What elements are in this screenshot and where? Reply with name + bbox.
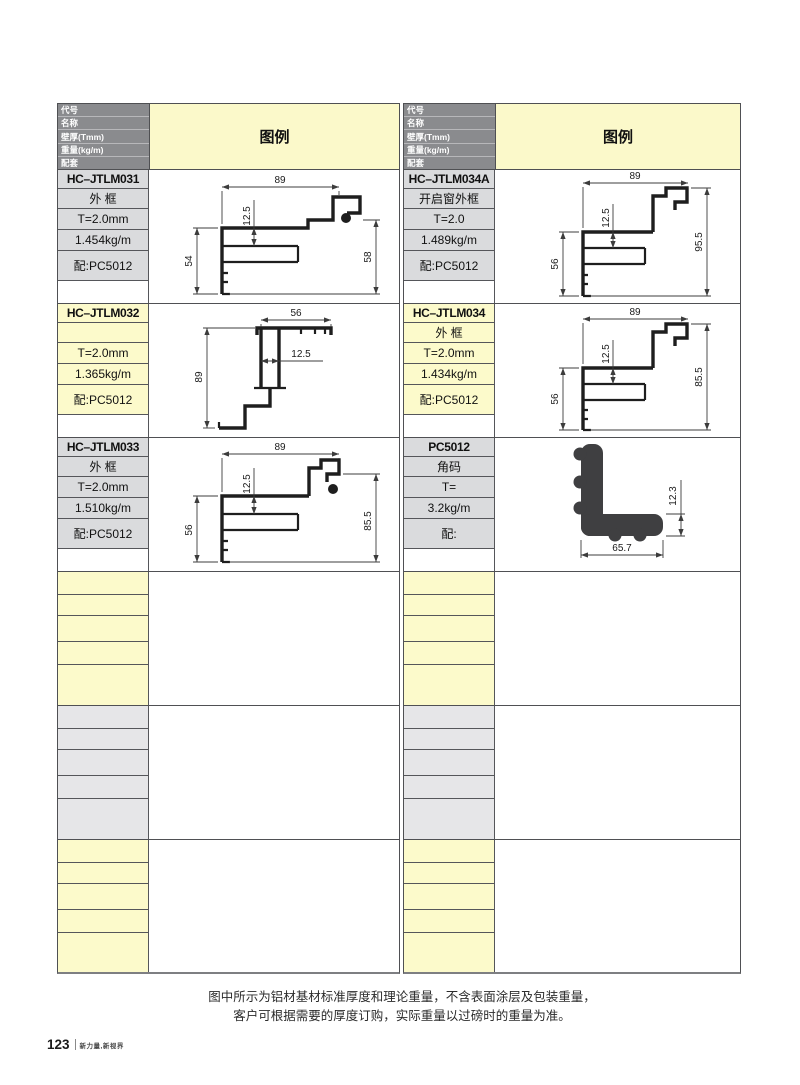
dim-label: 95.5 [694, 232, 705, 252]
table-left-half: 代号 名称 壁厚(Tmm) 重量(kg/m) 配套 图例 HC–JTLM031 … [57, 103, 400, 974]
profile-drawing-jtlm034a: 89 12.5 56 95.5 [495, 170, 740, 303]
profile-match: 配:PC5012 [404, 385, 494, 415]
profile-code: PC5012 [404, 438, 494, 457]
profile-code: HC–JTLM034A [404, 170, 494, 189]
page-footer: 123 新力量,新视界 [47, 1037, 124, 1052]
profile-table: 代号 名称 壁厚(Tmm) 重量(kg/m) 配套 图例 HC–JTLM031 … [57, 103, 741, 974]
dim-label: 56 [184, 524, 195, 536]
dim-label: 58 [363, 251, 374, 263]
dim-label: 89 [274, 442, 286, 453]
table-row: PC5012 角码 T= 3.2kg/m 配: [403, 437, 741, 572]
header-label-match: 配套 [58, 157, 149, 169]
dim-label: 12.5 [242, 474, 253, 494]
footnote-line-1: 图中所示为铝材基材标准厚度和理论重量，不含表面涂层及包装重量， [57, 988, 747, 1007]
profile-weight: 1.365kg/m [58, 364, 148, 385]
profile-drawing-jtlm033: 89 12.5 56 85.5 [149, 438, 399, 571]
footer-slogan: 新力量,新视界 [80, 1040, 124, 1050]
profile-drawing-jtlm032: 56 12.5 89 [149, 304, 399, 437]
empty-table-row [57, 705, 400, 840]
dim-label: 56 [290, 308, 302, 319]
empty-table-row [57, 571, 400, 706]
profile-thickness: T=2.0mm [58, 209, 148, 230]
table-row: HC–JTLM032 T=2.0mm 1.365kg/m 配:PC5012 56 [57, 303, 400, 438]
table-row: HC–JTLM034A 开启窗外框 T=2.0 1.489kg/m 配:PC50… [403, 169, 741, 304]
table-right-half: 代号 名称 壁厚(Tmm) 重量(kg/m) 配套 图例 HC–JTLM034A… [403, 103, 741, 974]
empty-table-row [57, 839, 400, 974]
profile-name: 外 框 [404, 323, 494, 343]
profile-drawing-pc5012: 65.7 12.3 [495, 438, 740, 571]
profile-match: 配:PC5012 [404, 251, 494, 281]
dim-label: 54 [184, 255, 195, 267]
header-label-name: 名称 [58, 117, 149, 130]
header-label-thickness: 壁厚(Tmm) [58, 130, 149, 143]
profile-drawing-jtlm034: 89 12.5 56 85.5 [495, 304, 740, 437]
catalog-page: 代号 名称 壁厚(Tmm) 重量(kg/m) 配套 图例 HC–JTLM031 … [0, 0, 800, 1085]
dim-label: 85.5 [694, 367, 705, 387]
footer-divider [75, 1039, 76, 1050]
header-label-match: 配套 [404, 157, 495, 169]
profile-drawing-jtlm031: 89 12.5 54 58 [149, 170, 399, 303]
dim-label: 85.5 [363, 511, 374, 531]
profile-code: HC–JTLM033 [58, 438, 148, 457]
dim-label: 12.5 [601, 344, 612, 364]
profile-weight: 1.489kg/m [404, 230, 494, 251]
header-legend-title: 图例 [495, 104, 740, 169]
profile-thickness: T=2.0mm [58, 343, 148, 364]
dim-label: 12.5 [601, 208, 612, 228]
profile-match: 配: [404, 519, 494, 549]
dim-label: 56 [550, 393, 561, 405]
dim-label: 89 [629, 171, 641, 182]
profile-thickness: T=2.0mm [58, 477, 148, 498]
header-legend-title: 图例 [149, 104, 399, 169]
profile-thickness: T=2.0mm [404, 343, 494, 364]
profile-code: HC–JTLM034 [404, 304, 494, 323]
dim-label: 65.7 [612, 543, 632, 554]
profile-match: 配:PC5012 [58, 519, 148, 549]
dim-label: 56 [550, 258, 561, 270]
profile-thickness: T= [404, 477, 494, 498]
dim-label: 89 [194, 371, 205, 383]
page-number: 123 [47, 1037, 70, 1052]
profile-weight: 1.510kg/m [58, 498, 148, 519]
dim-label: 89 [629, 307, 641, 318]
table-header-right: 代号 名称 壁厚(Tmm) 重量(kg/m) 配套 图例 [403, 103, 741, 170]
profile-name: 角码 [404, 457, 494, 477]
empty-table-row [403, 839, 741, 974]
footnote: 图中所示为铝材基材标准厚度和理论重量，不含表面涂层及包装重量， 客户可根据需要的… [57, 988, 747, 1025]
profile-name: 外 框 [58, 457, 148, 477]
dim-label: 12.5 [242, 206, 253, 226]
profile-match: 配:PC5012 [58, 385, 148, 415]
dim-label: 12.5 [291, 349, 311, 360]
header-label-weight: 重量(kg/m) [404, 144, 495, 157]
profile-weight: 1.434kg/m [404, 364, 494, 385]
profile-weight: 1.454kg/m [58, 230, 148, 251]
table-row: HC–JTLM033 外 框 T=2.0mm 1.510kg/m 配:PC501… [57, 437, 400, 572]
empty-table-row [403, 571, 741, 706]
header-label-weight: 重量(kg/m) [58, 144, 149, 157]
table-row: HC–JTLM031 外 框 T=2.0mm 1.454kg/m 配:PC501… [57, 169, 400, 304]
header-label-code: 代号 [58, 104, 149, 117]
profile-thickness: T=2.0 [404, 209, 494, 230]
empty-table-row [403, 705, 741, 840]
profile-code: HC–JTLM032 [58, 304, 148, 323]
header-label-thickness: 壁厚(Tmm) [404, 130, 495, 143]
header-label-name: 名称 [404, 117, 495, 130]
profile-name: 外 框 [58, 189, 148, 209]
header-label-code: 代号 [404, 104, 495, 117]
profile-name [58, 323, 148, 343]
profile-match: 配:PC5012 [58, 251, 148, 281]
dim-label: 12.3 [668, 486, 679, 506]
dim-label: 89 [274, 175, 286, 186]
table-header-left: 代号 名称 壁厚(Tmm) 重量(kg/m) 配套 图例 [57, 103, 400, 170]
profile-code: HC–JTLM031 [58, 170, 148, 189]
footnote-line-2: 客户可根据需要的厚度订购，实际重量以过磅时的重量为准。 [57, 1007, 747, 1026]
profile-name: 开启窗外框 [404, 189, 494, 209]
profile-weight: 3.2kg/m [404, 498, 494, 519]
table-row: HC–JTLM034 外 框 T=2.0mm 1.434kg/m 配:PC501… [403, 303, 741, 438]
